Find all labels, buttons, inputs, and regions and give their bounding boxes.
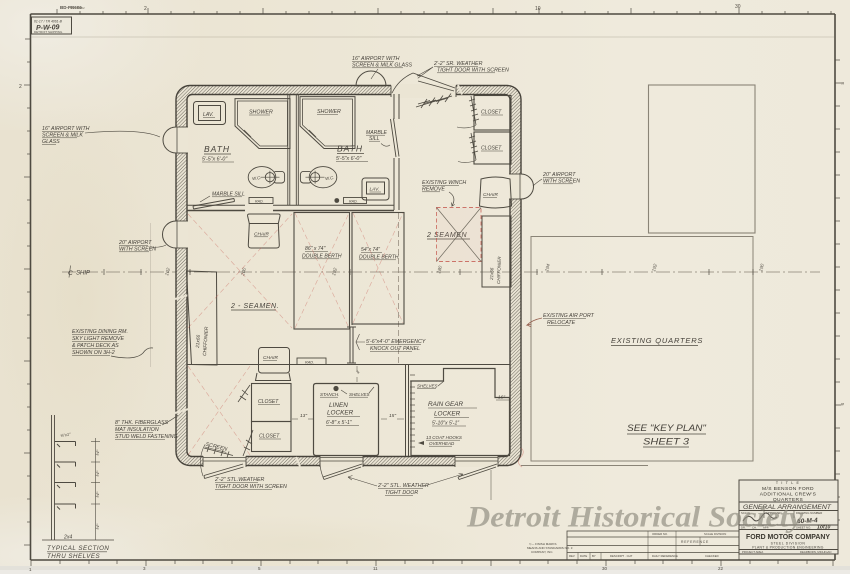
svg-text:15": 15" — [389, 413, 396, 419]
svg-text:RAD.: RAD. — [255, 200, 264, 204]
svg-text:THRU SHELVES: THRU SHELVES — [47, 553, 100, 560]
svg-text:BATH: BATH — [337, 144, 363, 154]
svg-text:CLOSET: CLOSET — [481, 146, 502, 152]
svg-text:LAV.: LAV. — [370, 187, 380, 193]
svg-text:13 COAT HOOKS: 13 COAT HOOKS — [426, 435, 462, 440]
svg-text:EXISTING QUARTERS: EXISTING QUARTERS — [611, 336, 703, 345]
svg-text:PROJECT AREA: PROJECT AREA — [742, 550, 763, 554]
svg-text:10: 10 — [535, 6, 541, 12]
svg-text:CLOSET: CLOSET — [258, 399, 279, 405]
svg-text:30: 30 — [735, 4, 741, 10]
svg-text:SHOWER: SHOWER — [317, 109, 341, 115]
svg-text:SHEET 3: SHEET 3 — [643, 437, 690, 447]
svg-text:13": 13" — [300, 413, 307, 419]
svg-text:DETROIT SHIPPING: DETROIT SHIPPING — [34, 30, 63, 34]
svg-text:COMPANY, INC.: COMPANY, INC. — [531, 550, 553, 554]
svg-text:2: 2 — [144, 6, 147, 12]
svg-text:SEE "KEY PLAN": SEE "KEY PLAN" — [627, 423, 707, 433]
svg-text:DATE: DATE — [580, 554, 587, 558]
svg-text:BATH: BATH — [204, 144, 230, 154]
svg-text:6'-8" x 5'-1": 6'-8" x 5'-1" — [326, 420, 352, 426]
svg-text:CHECKED: CHECKED — [705, 554, 719, 558]
svg-text:RAD.: RAD. — [305, 361, 314, 365]
svg-text:DESCRIPT · CHT: DESCRIPT · CHT — [610, 554, 633, 558]
svg-text:22: 22 — [718, 566, 724, 571]
svg-text:CLOSET: CLOSET — [259, 434, 280, 440]
svg-text:2x4: 2x4 — [63, 535, 72, 541]
svg-text:2: 2 — [19, 84, 22, 90]
svg-text:11: 11 — [373, 566, 378, 571]
svg-text:Detroit Historical Society: Detroit Historical Society — [466, 501, 804, 534]
svg-text:T I T L E: T I T L E — [776, 481, 800, 485]
svg-text:LOCKER: LOCKER — [434, 411, 461, 418]
svg-text:REV 10-52: REV 10-52 — [70, 6, 85, 10]
svg-text:STANCH.: STANCH. — [320, 392, 339, 397]
svg-text:SHOWER: SHOWER — [249, 110, 273, 116]
svg-text:TYPICAL SECTION: TYPICAL SECTION — [47, 545, 109, 552]
svg-text:5'-10"x 5'-1": 5'-10"x 5'-1" — [432, 421, 459, 427]
svg-text:CLOSET: CLOSET — [481, 110, 502, 116]
svg-text:SHELVES: SHELVES — [417, 384, 438, 389]
svg-text:LINEN: LINEN — [329, 402, 348, 409]
svg-text:30: 30 — [602, 566, 608, 571]
svg-text:21x66: 21x66 — [489, 267, 494, 281]
svg-text:SHIP: SHIP — [76, 271, 90, 277]
svg-text:LAV.: LAV. — [203, 112, 213, 118]
svg-text:01-17 / TR 4061-B: 01-17 / TR 4061-B — [34, 20, 63, 24]
svg-text:1of10: 1of10 — [817, 525, 830, 531]
svg-text:C: C — [68, 270, 73, 277]
svg-text:21x66: 21x66 — [195, 334, 202, 349]
svg-text:REV: REV — [569, 554, 575, 558]
svg-text:BY: BY — [592, 554, 596, 558]
svg-text:RAD.: RAD. — [349, 200, 358, 204]
svg-text:5'-5"x 6'-0": 5'-5"x 6'-0" — [202, 157, 228, 163]
svg-text:16": 16" — [498, 395, 505, 401]
svg-text:2 - SEAMEN.: 2 - SEAMEN. — [230, 303, 279, 310]
svg-text:OVERHEAD: OVERHEAD — [429, 441, 455, 446]
svg-text:LOCKER: LOCKER — [327, 410, 354, 417]
svg-text:5'-5"x 6'-0": 5'-5"x 6'-0" — [336, 156, 362, 162]
svg-text:ADDITIONAL CREW'S: ADDITIONAL CREW'S — [760, 492, 817, 498]
svg-text:DAILY REFERENCE: DAILY REFERENCE — [652, 554, 678, 558]
svg-text:REFERENCE: REFERENCE — [681, 540, 709, 544]
svg-text:CHIFFONIER: CHIFFONIER — [496, 256, 502, 284]
svg-text:DEARBORN, MICHIGAN: DEARBORN, MICHIGAN — [800, 550, 831, 554]
svg-text:PLANT & PRODUCTION ENGINEERING: PLANT & PRODUCTION ENGINEERING — [752, 546, 824, 550]
svg-text:M/S BENSON FORD: M/S BENSON FORD — [762, 486, 814, 492]
svg-text:RAIN GEAR: RAIN GEAR — [428, 401, 464, 408]
svg-text:SHELVES: SHELVES — [349, 392, 370, 397]
